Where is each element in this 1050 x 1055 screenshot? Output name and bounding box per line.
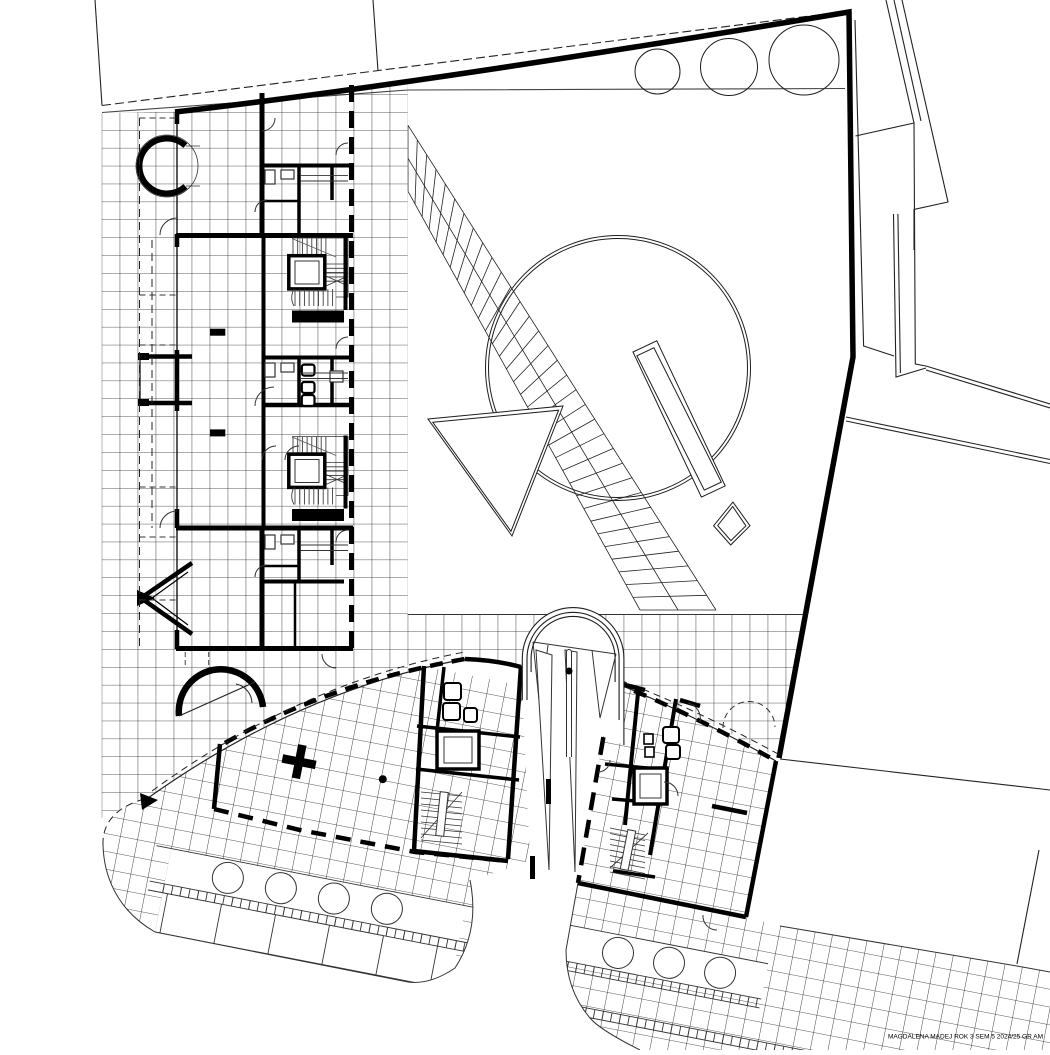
svg-text:MAGDALENA MADEJ ROK 3 SEM 5: MAGDALENA MADEJ ROK 3 SEM 5 2024/25 GR A… xyxy=(888,1034,1043,1041)
